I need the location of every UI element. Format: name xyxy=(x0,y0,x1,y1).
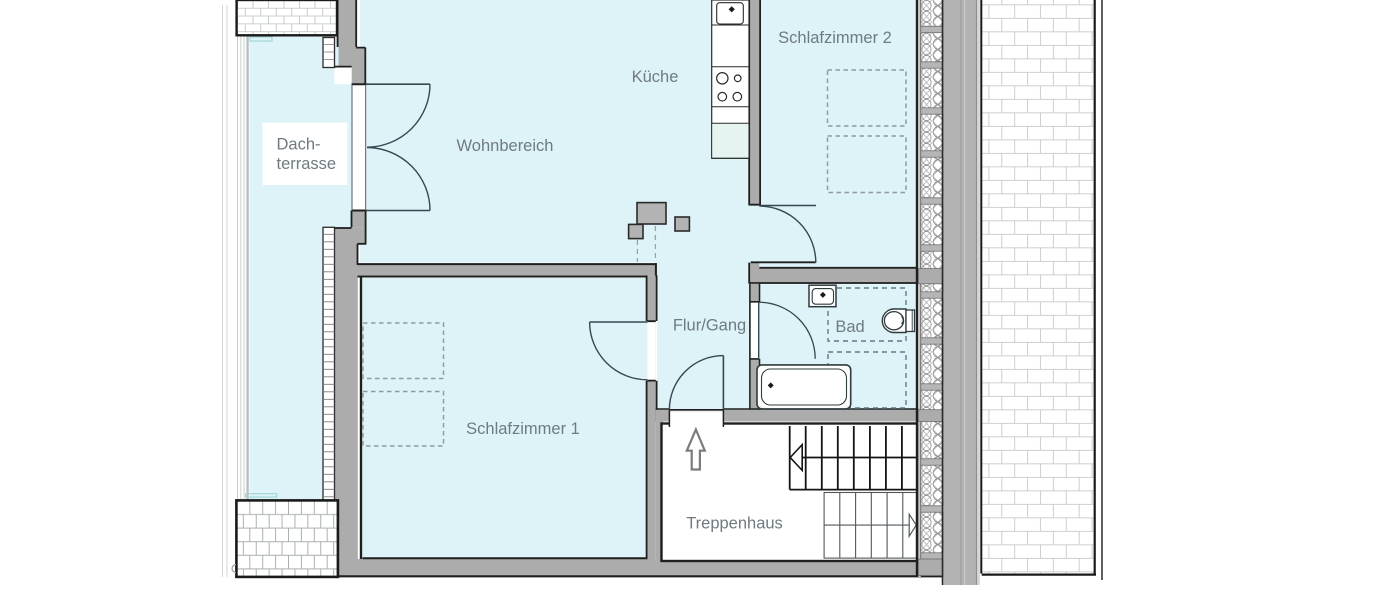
svg-text:Bad: Bad xyxy=(835,318,864,336)
svg-text:Dach-: Dach- xyxy=(277,136,321,154)
svg-text:terrasse: terrasse xyxy=(277,155,337,173)
svg-text:Schlafzimmer 2: Schlafzimmer 2 xyxy=(778,29,892,47)
svg-text:Schlafzimmer 1: Schlafzimmer 1 xyxy=(466,420,580,438)
svg-text:Wohnbereich: Wohnbereich xyxy=(457,137,554,155)
svg-text:Treppenhaus: Treppenhaus xyxy=(686,515,783,533)
svg-text:Küche: Küche xyxy=(632,68,679,86)
svg-text:Flur/Gang: Flur/Gang xyxy=(673,317,746,335)
